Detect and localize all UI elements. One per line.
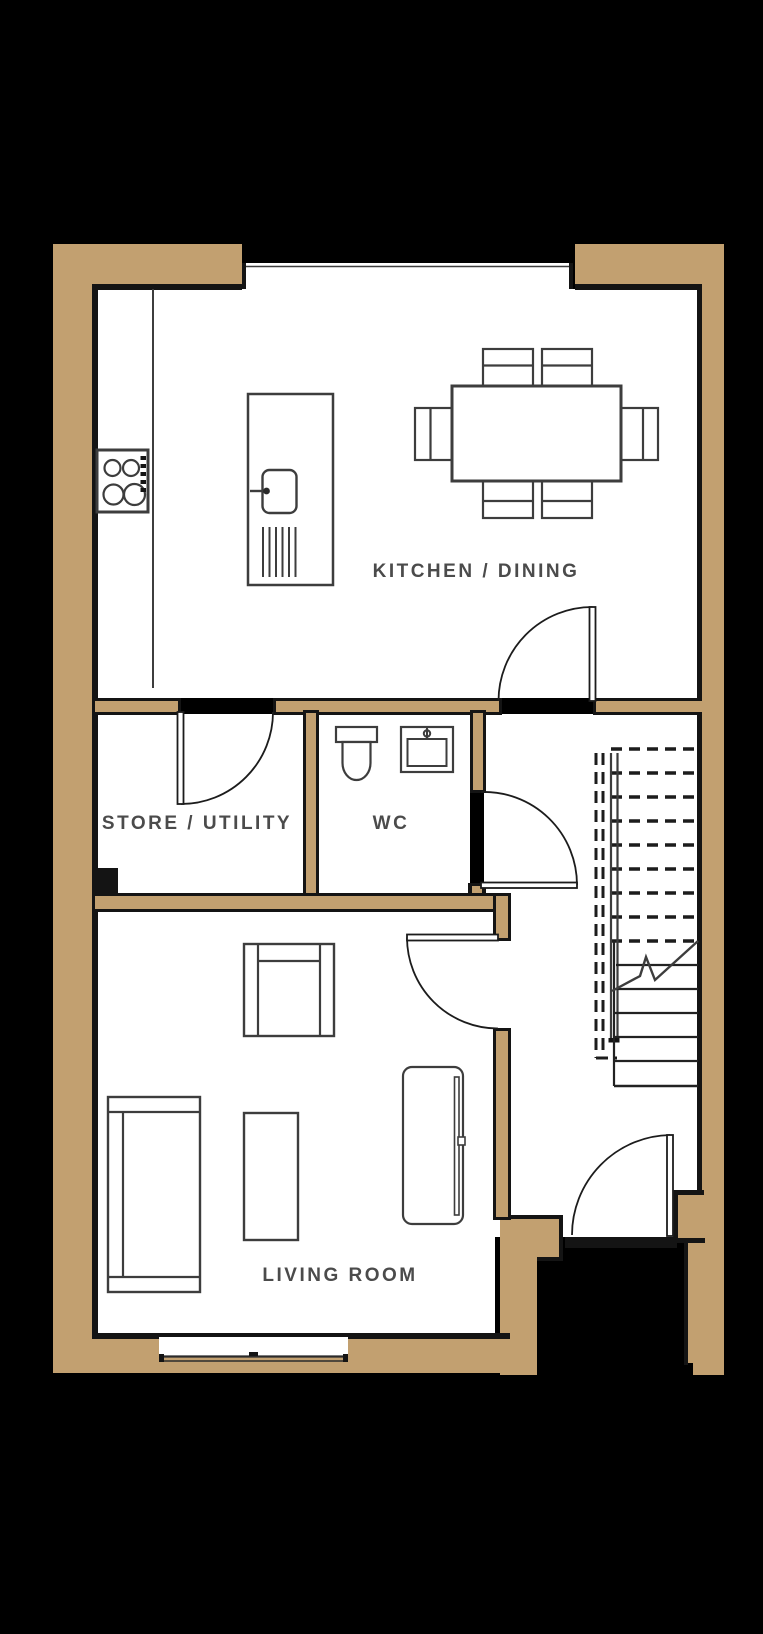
kitchen-island-sink-icon	[248, 394, 333, 585]
store-utility-floor	[97, 714, 303, 893]
porch-right-wall	[677, 1190, 724, 1243]
tv-unit-icon	[403, 1067, 465, 1224]
living-room-label: LIVING ROOM	[262, 1265, 417, 1287]
hob-icon	[97, 450, 148, 512]
dining-chair	[483, 349, 533, 386]
tv-screen	[455, 1077, 460, 1215]
kitchen-dining-label: KITCHEN / DINING	[373, 561, 580, 583]
dining-chair	[483, 481, 533, 518]
floor-plan: KITCHEN / DINING STORE / UTILITY WC LIVI…	[0, 0, 763, 1634]
hall-floor	[484, 714, 697, 1237]
dining-chair	[415, 408, 452, 460]
wc-label: WC	[373, 813, 410, 835]
tv-mount	[458, 1137, 465, 1145]
armchair-icon	[244, 944, 334, 1036]
basin-icon	[401, 727, 453, 772]
dining-table-top	[452, 386, 621, 481]
dining-chair	[542, 349, 592, 386]
store-utility-label: STORE / UTILITY	[102, 813, 292, 835]
sofa-icon	[108, 1097, 200, 1292]
porch-left-wall	[500, 1217, 563, 1257]
front-door-threshold	[565, 1237, 677, 1248]
coffee-table-icon	[244, 1113, 298, 1240]
dining-chair	[542, 481, 592, 518]
kitchen-top-window	[242, 263, 573, 289]
kitchen-dining-floor	[97, 289, 697, 698]
dining-chair	[621, 408, 658, 460]
